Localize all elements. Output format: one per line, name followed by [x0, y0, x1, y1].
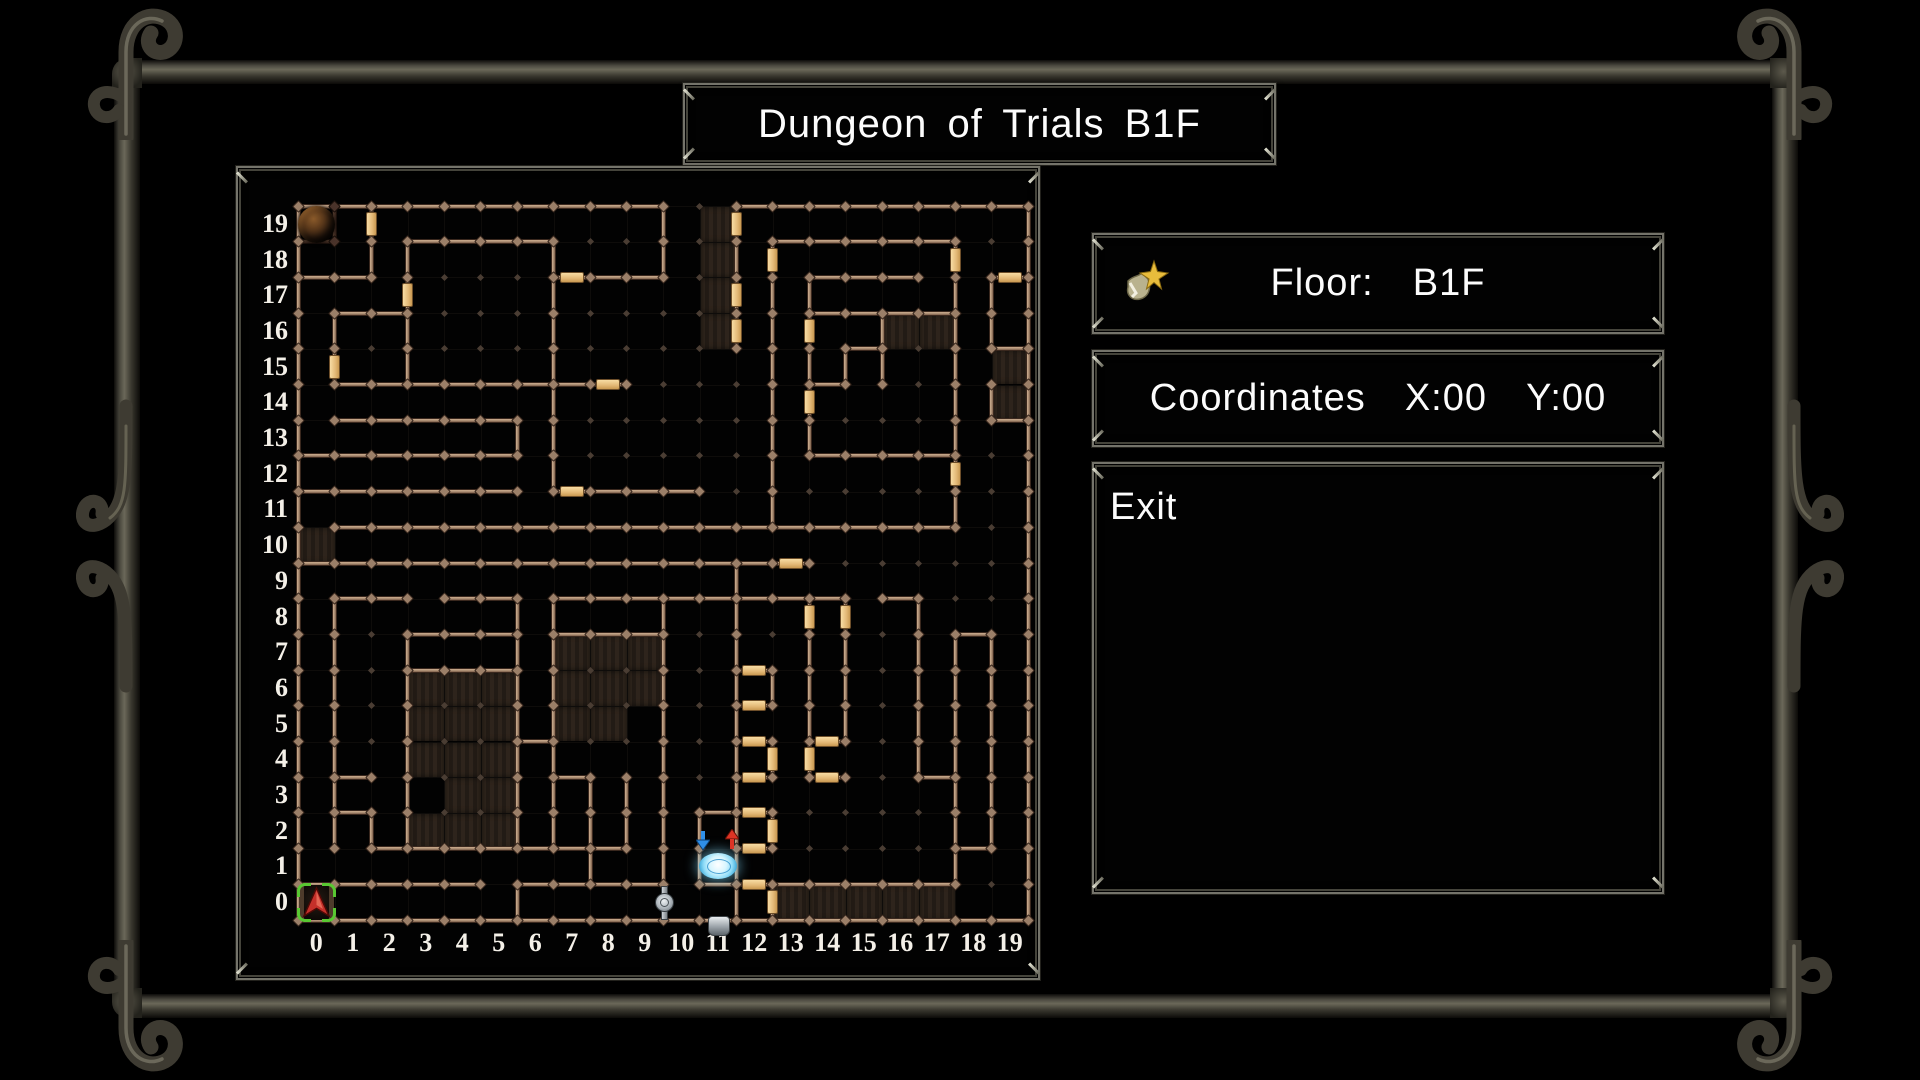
map-grid-dot [878, 845, 885, 852]
map-wall-joint [547, 771, 560, 784]
map-grid-dot [878, 559, 885, 566]
map-grid-dot [805, 809, 812, 816]
map-dark-cell [810, 885, 846, 920]
map-grid-dot [477, 274, 484, 281]
map-wall-joint [292, 842, 305, 855]
map-grid-dot [988, 881, 995, 888]
map-dark-cell [993, 350, 1029, 385]
frame-scroll-ornament-bottom-left [64, 940, 214, 1080]
map-wall-joint [438, 414, 451, 427]
map-door [742, 736, 766, 747]
map-wall-joint [693, 557, 706, 570]
map-wall-joint [584, 557, 597, 570]
map-wall-joint [766, 200, 779, 213]
map-door [742, 843, 766, 854]
map-door [950, 462, 961, 486]
map-wall-joint [730, 557, 743, 570]
map-wall-joint [547, 414, 560, 427]
y-axis-label: 12 [252, 459, 288, 489]
portal-oval [699, 853, 737, 879]
x-axis-label: 12 [739, 928, 769, 958]
map-wall-joint [365, 307, 378, 320]
map-wall-joint [365, 878, 378, 891]
map-door [779, 558, 803, 569]
map-wall-joint [328, 271, 341, 284]
map-wall-joint [365, 771, 378, 784]
map-wall-joint [803, 414, 816, 427]
map-wall-joint [839, 771, 852, 784]
map-door [731, 283, 742, 307]
map-wall-joint [401, 307, 414, 320]
map-wall-joint [912, 271, 925, 284]
map-wall-joint [328, 485, 341, 498]
map-wall-joint [547, 200, 560, 213]
map-wall-joint [766, 557, 779, 570]
fountain-switch-icon [655, 893, 674, 912]
map-wall-joint [401, 592, 414, 605]
map-wall-joint [292, 735, 305, 748]
map-grid-dot [915, 559, 922, 566]
floor-label: Floor: [1271, 262, 1374, 305]
map-dark-cell [555, 707, 591, 742]
map-wall-joint [584, 807, 597, 820]
map-wall-joint [766, 521, 779, 534]
map-door [731, 212, 742, 236]
map-wall-joint [511, 200, 524, 213]
map-grid-dot [878, 809, 885, 816]
map-wall-joint [547, 235, 560, 248]
map-wall-joint [730, 914, 743, 927]
map-dark-cell [409, 671, 445, 706]
map-dark-cell [920, 885, 956, 920]
map-panel: 0123456789101112131415161718190123456789… [236, 166, 1040, 980]
y-axis-label: 0 [252, 887, 288, 917]
map-wall-joint [985, 271, 998, 284]
map-wall-joint [657, 842, 670, 855]
map-grid-dot [513, 345, 520, 352]
map-dark-cell [555, 671, 591, 706]
map-wall-joint [292, 342, 305, 355]
map-wall-joint [949, 200, 962, 213]
map-wall-joint [328, 414, 341, 427]
map-wall-joint [730, 735, 743, 748]
map-wall-joint [949, 842, 962, 855]
x-axis-label: 2 [374, 928, 404, 958]
map-wall-joint [328, 735, 341, 748]
map-dark-cell [445, 778, 481, 813]
x-axis-label: 18 [958, 928, 988, 958]
map-wall-joint [730, 807, 743, 820]
map-wall-joint [438, 592, 451, 605]
map-wall-joint [839, 307, 852, 320]
map-grid-dot [367, 702, 374, 709]
map-wall-joint [328, 699, 341, 712]
map-wall-joint [730, 699, 743, 712]
chalice-icon [708, 916, 730, 936]
map-wall-joint [1022, 200, 1035, 213]
map-wall-joint [401, 450, 414, 463]
map-wall [588, 775, 593, 887]
map-wall-joint [657, 592, 670, 605]
map-wall-joint [693, 878, 706, 891]
map-dark-cell [482, 743, 518, 778]
map-wall-joint [839, 342, 852, 355]
map-wall-joint [474, 878, 487, 891]
frame-scroll-ornament-top-right [1706, 0, 1856, 140]
map-door [767, 819, 778, 843]
map-grid-dot [842, 559, 849, 566]
map-wall-joint [876, 200, 889, 213]
map-door [742, 807, 766, 818]
map-wall-joint [766, 235, 779, 248]
y-axis-label: 3 [252, 780, 288, 810]
map-wall-joint [328, 664, 341, 677]
map-grid-dot [367, 631, 374, 638]
map-dark-cell [555, 635, 591, 670]
map-wall-joint [438, 521, 451, 534]
map-wall-joint [876, 592, 889, 605]
map-wall [551, 632, 666, 637]
red-arrow-icon [299, 885, 334, 920]
map-grid-dot [915, 488, 922, 495]
map-door [596, 379, 620, 390]
map-door [560, 486, 584, 497]
map-door [840, 605, 851, 629]
y-axis-label: 4 [252, 744, 288, 774]
map-grid-dot [586, 310, 593, 317]
map-door [998, 272, 1022, 283]
map-wall-joint [474, 914, 487, 927]
map-dark-cell [445, 814, 481, 849]
map-wall-joint [584, 378, 597, 391]
map-wall-joint [584, 592, 597, 605]
map-wall-joint [657, 771, 670, 784]
map-wall-joint [584, 842, 597, 855]
map-wall-joint [803, 235, 816, 248]
y-axis-label: 8 [252, 602, 288, 632]
coordinate-x-value: X:00 [1405, 377, 1487, 420]
map-wall-joint [292, 271, 305, 284]
map-wall-joint [547, 307, 560, 320]
map-grid-dot [586, 452, 593, 459]
floor-value: B1F [1413, 262, 1486, 305]
map-wall-joint [547, 557, 560, 570]
map-grid-dot [988, 524, 995, 531]
player-position-marker [299, 885, 334, 920]
map-wall-joint [839, 592, 852, 605]
map-dark-cell [920, 314, 956, 349]
x-axis-label: 10 [666, 928, 696, 958]
map-dark-cell [482, 671, 518, 706]
map-grid-dot [623, 238, 630, 245]
map-wall-joint [547, 271, 560, 284]
map-wall-joint [547, 450, 560, 463]
map-wall-joint [730, 628, 743, 641]
map-wall [405, 668, 520, 673]
map-wall-joint [365, 807, 378, 820]
map-wall-joint [547, 914, 560, 927]
map-door [950, 248, 961, 272]
map-wall-joint [620, 378, 633, 391]
map-grid-dot [915, 845, 922, 852]
map-wall-joint [766, 842, 779, 855]
map-wall-joint [912, 450, 925, 463]
map-wall-joint [474, 414, 487, 427]
map-door [804, 605, 815, 629]
map-dark-cell [445, 671, 481, 706]
map-wall-joint [511, 592, 524, 605]
map-wall-joint [912, 699, 925, 712]
map-wall-joint [511, 450, 524, 463]
map-wall-joint [839, 664, 852, 677]
map-grid-dot [659, 452, 666, 459]
map-wall-joint [328, 342, 341, 355]
map-door [767, 248, 778, 272]
map-wall-joint [620, 485, 633, 498]
map-wall-joint [438, 628, 451, 641]
map-wall-joint [365, 485, 378, 498]
map-door [815, 736, 839, 747]
map-grid-dot [732, 452, 739, 459]
map-wall-joint [401, 628, 414, 641]
map-wall-joint [328, 378, 341, 391]
map-wall-joint [876, 271, 889, 284]
map-wall-joint [474, 592, 487, 605]
map-wall-joint [401, 485, 414, 498]
map-wall-joint [1022, 485, 1035, 498]
map-wall-joint [1022, 807, 1035, 820]
map-wall-joint [620, 771, 633, 784]
map-wall-joint [766, 378, 779, 391]
map-wall-joint [620, 914, 633, 927]
map-wall-joint [438, 450, 451, 463]
map-wall-joint [620, 842, 633, 855]
map-grid-dot [915, 381, 922, 388]
map-grid-dot [659, 417, 666, 424]
map-grid-dot [659, 381, 666, 388]
map-wall-joint [401, 878, 414, 891]
map-wall-joint [620, 521, 633, 534]
map-wall-joint [1022, 842, 1035, 855]
map-wall-joint [620, 878, 633, 891]
map-wall-joint [365, 378, 378, 391]
frame-scroll-ornament-left-middle [76, 396, 148, 696]
map-wall-joint [474, 450, 487, 463]
map-wall-joint [547, 592, 560, 605]
y-axis-label: 5 [252, 709, 288, 739]
menu-item-exit[interactable]: Exit [1110, 486, 1177, 529]
map-wall-joint [839, 699, 852, 712]
map-wall-joint [1022, 914, 1035, 927]
map-wall-joint [365, 914, 378, 927]
map-wall-joint [547, 807, 560, 820]
map-wall-joint [511, 914, 524, 927]
map-grid-dot [988, 559, 995, 566]
map-grid-dot [440, 310, 447, 317]
map-wall-joint [949, 664, 962, 677]
map-grid-dot [586, 345, 593, 352]
map-dark-cell [482, 778, 518, 813]
map-wall-joint [949, 378, 962, 391]
y-axis-label: 16 [252, 316, 288, 346]
map-wall [807, 275, 812, 459]
map-wall-joint [620, 271, 633, 284]
map-grid-dot [696, 774, 703, 781]
map-wall-joint [438, 878, 451, 891]
y-axis-label: 15 [252, 352, 288, 382]
map-door [804, 319, 815, 343]
map-wall-joint [876, 450, 889, 463]
map-wall-joint [949, 485, 962, 498]
map-wall-joint [474, 557, 487, 570]
map-grid-dot [440, 274, 447, 281]
map-wall-joint [766, 485, 779, 498]
map-wall-joint [730, 878, 743, 891]
map-door [804, 390, 815, 414]
map-wall-joint [292, 628, 305, 641]
map-wall-joint [766, 771, 779, 784]
map-grid-dot [988, 452, 995, 459]
map-grid-dot [659, 345, 666, 352]
map-wall-joint [912, 664, 925, 677]
map-wall-joint [511, 485, 524, 498]
map-wall-joint [766, 664, 779, 677]
map-wall-joint [766, 342, 779, 355]
map-wall-joint [839, 235, 852, 248]
map-grid-dot [805, 488, 812, 495]
map-wall-joint [803, 628, 816, 641]
map-wall-joint [985, 307, 998, 320]
stairs-up-arrow-icon [725, 829, 739, 849]
map-wall-joint [949, 807, 962, 820]
map-wall-joint [438, 200, 451, 213]
map-wall-joint [766, 807, 779, 820]
map-wall-joint [474, 628, 487, 641]
map-wall-joint [328, 200, 341, 213]
map-wall-joint [328, 771, 341, 784]
y-axis-label: 2 [252, 816, 288, 846]
y-axis-label: 14 [252, 387, 288, 417]
map-wall-joint [292, 592, 305, 605]
x-axis-label: 19 [995, 928, 1025, 958]
map-wall-joint [912, 628, 925, 641]
map-wall-joint [328, 307, 341, 320]
coordinates-label: Coordinates [1150, 377, 1366, 420]
frame-scroll-ornament-top-left [64, 0, 214, 140]
map-grid-dot [477, 345, 484, 352]
x-axis-label: 8 [593, 928, 623, 958]
map-wall-joint [1022, 699, 1035, 712]
map-wall-joint [292, 450, 305, 463]
x-axis-label: 9 [630, 928, 660, 958]
map-wall-joint [1022, 557, 1035, 570]
map-wall-joint [547, 842, 560, 855]
map-wall-joint [730, 592, 743, 605]
map-wall-joint [766, 450, 779, 463]
map-wall-joint [949, 521, 962, 534]
map-wall-joint [401, 378, 414, 391]
frame-top-bar [128, 60, 1792, 84]
map-wall-joint [401, 235, 414, 248]
map-wall-joint [401, 414, 414, 427]
map-wall-joint [657, 271, 670, 284]
map-wall-joint [803, 521, 816, 534]
map-wall-joint [365, 200, 378, 213]
page-title: Dungeon of Trials B1F [685, 85, 1274, 163]
y-axis-label: 18 [252, 245, 288, 275]
dungeon-map: 0123456789101112131415161718190123456789… [238, 168, 1038, 978]
map-wall-joint [474, 521, 487, 534]
map-wall-joint [401, 271, 414, 284]
y-axis-label: 11 [252, 494, 288, 524]
map-grid-dot [842, 809, 849, 816]
map-wall-joint [401, 200, 414, 213]
map-wall-joint [766, 414, 779, 427]
map-grid-dot [915, 417, 922, 424]
map-wall-joint [292, 485, 305, 498]
map-dark-cell [445, 743, 481, 778]
map-wall-joint [657, 235, 670, 248]
map-dark-cell [409, 743, 445, 778]
map-grid-dot [367, 667, 374, 674]
map-dark-cell [591, 635, 627, 670]
floor-panel: Floor: B1F [1092, 233, 1664, 334]
map-wall-joint [657, 735, 670, 748]
map-grid-dot [623, 310, 630, 317]
map-wall-joint [693, 914, 706, 927]
map-grid-dot [842, 845, 849, 852]
map-wall-joint [803, 450, 816, 463]
map-grid-dot [878, 417, 885, 424]
map-wall [405, 632, 520, 637]
map-door [402, 283, 413, 307]
map-wall-joint [511, 378, 524, 391]
map-wall-joint [474, 200, 487, 213]
map-wall-joint [803, 557, 816, 570]
map-door [767, 747, 778, 771]
map-grid-dot [513, 274, 520, 281]
x-axis-label: 5 [484, 928, 514, 958]
map-wall-joint [839, 628, 852, 641]
map-wall-joint [949, 414, 962, 427]
map-dark-cell [591, 707, 627, 742]
map-wall-joint [912, 200, 925, 213]
map-wall-joint [693, 521, 706, 534]
map-wall-joint [1022, 235, 1035, 248]
map-wall-joint [949, 235, 962, 248]
map-wall-joint [292, 307, 305, 320]
panel-corner-accent [1652, 467, 1664, 479]
map-wall-joint [401, 342, 414, 355]
map-grid-dot [623, 417, 630, 424]
y-axis-label: 13 [252, 423, 288, 453]
map-wall-joint [511, 235, 524, 248]
map-grid-dot [805, 845, 812, 852]
x-axis-label: 3 [411, 928, 441, 958]
map-wall-joint [1022, 521, 1035, 534]
map-wall-joint [803, 735, 816, 748]
map-grid-dot [586, 417, 593, 424]
map-dark-cell [409, 707, 445, 742]
map-wall-joint [365, 592, 378, 605]
map-wall-joint [985, 771, 998, 784]
map-wall-joint [365, 450, 378, 463]
map-wall-joint [839, 200, 852, 213]
map-wall-joint [803, 307, 816, 320]
map-door [742, 879, 766, 890]
map-dark-cell [299, 528, 335, 563]
map-wall-joint [803, 200, 816, 213]
